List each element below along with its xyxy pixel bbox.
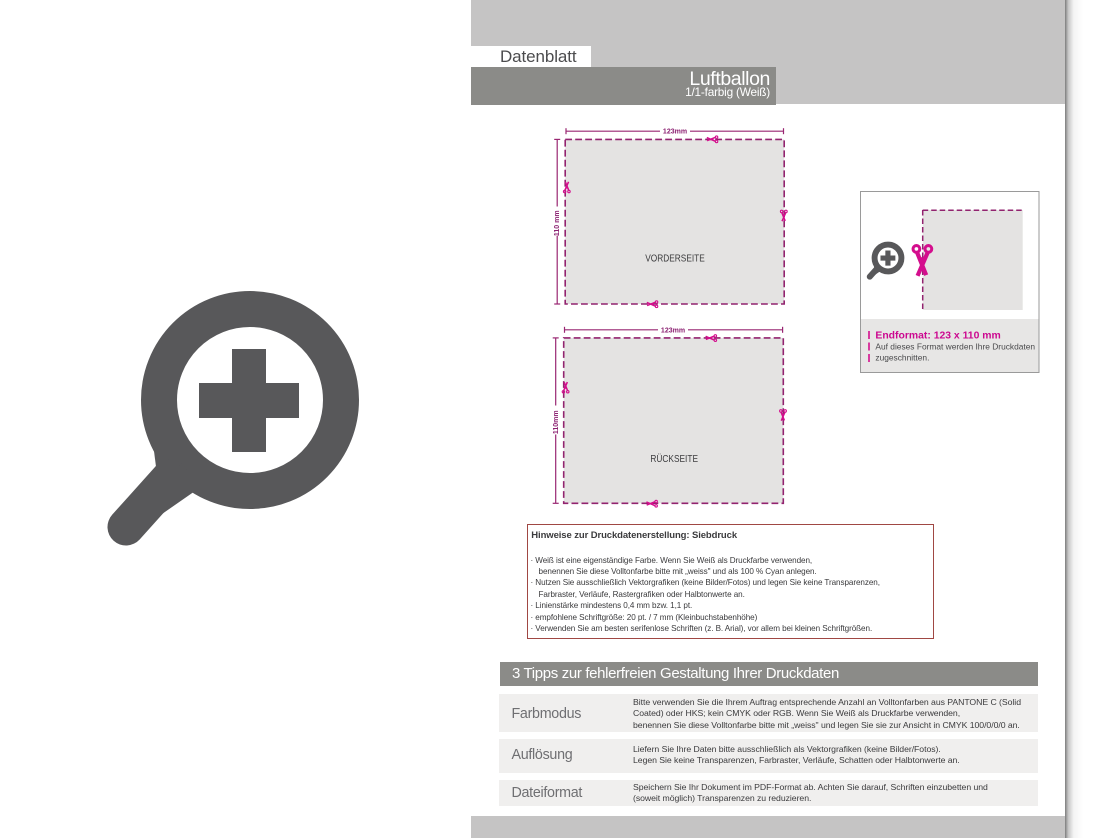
svg-text:zugeschnitten.: zugeschnitten. [875,353,929,363]
svg-text:110mm: 110mm [553,410,560,434]
svg-text:RÜCKSEITE: RÜCKSEITE [650,453,698,464]
svg-text:Endformat: 123 x 110 mm: Endformat: 123 x 110 mm [875,331,1000,342]
svg-text:123mm: 123mm [663,129,687,136]
svg-text:123mm: 123mm [661,327,685,334]
svg-text:110 mm: 110 mm [554,210,561,236]
svg-text:Auf dieses Format werden Ihre: Auf dieses Format werden Ihre Druckdaten [875,342,1035,352]
svg-text:VORDERSEITE: VORDERSEITE [645,253,705,264]
